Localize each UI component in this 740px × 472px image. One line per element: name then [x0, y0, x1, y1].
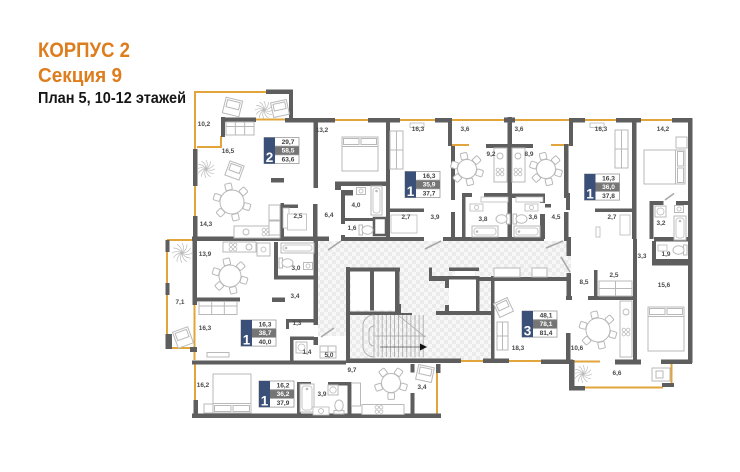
- svg-text:3,4: 3,4: [418, 384, 427, 391]
- svg-text:1,6: 1,6: [348, 225, 357, 232]
- svg-text:3,6: 3,6: [515, 126, 524, 133]
- svg-text:2,7: 2,7: [608, 214, 617, 221]
- svg-text:14,3: 14,3: [200, 221, 213, 228]
- svg-text:16,3: 16,3: [423, 173, 436, 180]
- svg-text:3,9: 3,9: [318, 391, 327, 398]
- svg-text:КОРПУС 2: КОРПУС 2: [38, 39, 130, 62]
- svg-text:36,0: 36,0: [602, 184, 615, 191]
- svg-text:6,6: 6,6: [613, 370, 622, 377]
- svg-text:40,0: 40,0: [259, 339, 272, 346]
- svg-text:16,3: 16,3: [412, 126, 425, 133]
- svg-text:13,9: 13,9: [199, 251, 212, 258]
- svg-text:1: 1: [243, 333, 251, 348]
- svg-text:10,6: 10,6: [571, 345, 584, 352]
- svg-text:36,2: 36,2: [277, 391, 290, 398]
- svg-text:63,6: 63,6: [282, 156, 295, 163]
- svg-text:Секция 9: Секция 9: [38, 65, 122, 87]
- svg-text:3: 3: [524, 324, 532, 339]
- svg-text:3,6: 3,6: [461, 126, 470, 133]
- svg-text:7,1: 7,1: [176, 299, 185, 306]
- svg-text:18,3: 18,3: [512, 345, 525, 352]
- svg-text:3,6: 3,6: [529, 214, 538, 221]
- svg-text:16,2: 16,2: [277, 383, 290, 390]
- svg-text:16,5: 16,5: [222, 148, 235, 155]
- svg-text:13,2: 13,2: [316, 127, 329, 134]
- svg-text:16,3: 16,3: [259, 322, 272, 329]
- svg-text:1: 1: [407, 184, 415, 199]
- svg-text:4,5: 4,5: [552, 214, 561, 221]
- svg-text:35,9: 35,9: [423, 182, 436, 189]
- svg-text:5,0: 5,0: [325, 352, 334, 359]
- svg-text:3,3: 3,3: [638, 253, 647, 260]
- svg-text:37,9: 37,9: [277, 400, 290, 407]
- svg-text:6,4: 6,4: [325, 212, 334, 219]
- svg-text:План 5, 10-12 этажей: План 5, 10-12 этажей: [38, 90, 186, 107]
- svg-text:37,7: 37,7: [423, 190, 436, 197]
- svg-text:48,1: 48,1: [540, 313, 553, 320]
- svg-text:3,4: 3,4: [291, 293, 300, 300]
- svg-text:2: 2: [266, 150, 274, 165]
- svg-text:2,5: 2,5: [610, 272, 619, 279]
- svg-text:78,1: 78,1: [540, 321, 553, 328]
- svg-text:1,3: 1,3: [293, 320, 302, 327]
- svg-text:2,5: 2,5: [294, 213, 303, 220]
- svg-text:3,0: 3,0: [292, 265, 301, 272]
- svg-text:16,3: 16,3: [602, 176, 615, 183]
- svg-text:8,9: 8,9: [525, 151, 534, 158]
- svg-text:4,0: 4,0: [352, 202, 361, 209]
- svg-text:16,3: 16,3: [199, 325, 212, 332]
- svg-text:1: 1: [261, 394, 269, 409]
- svg-text:9,2: 9,2: [487, 151, 496, 158]
- svg-text:10,2: 10,2: [198, 121, 211, 128]
- svg-text:14,2: 14,2: [657, 126, 670, 133]
- svg-text:37,8: 37,8: [602, 193, 615, 200]
- svg-text:2,7: 2,7: [402, 214, 411, 221]
- svg-text:3,8: 3,8: [479, 216, 488, 223]
- svg-text:16,3: 16,3: [595, 126, 608, 133]
- svg-text:3,2: 3,2: [657, 220, 666, 227]
- svg-text:8,5: 8,5: [580, 279, 589, 286]
- svg-text:16,2: 16,2: [197, 382, 210, 389]
- svg-text:58,5: 58,5: [282, 148, 295, 155]
- svg-text:81,4: 81,4: [540, 330, 553, 337]
- svg-text:1,4: 1,4: [303, 349, 312, 356]
- svg-text:15,6: 15,6: [658, 282, 671, 289]
- svg-text:1: 1: [586, 187, 594, 202]
- svg-text:9,7: 9,7: [348, 367, 357, 374]
- svg-text:29,7: 29,7: [282, 139, 295, 146]
- svg-text:38,7: 38,7: [259, 330, 272, 337]
- svg-text:1,9: 1,9: [662, 251, 671, 258]
- svg-text:3,9: 3,9: [431, 214, 440, 221]
